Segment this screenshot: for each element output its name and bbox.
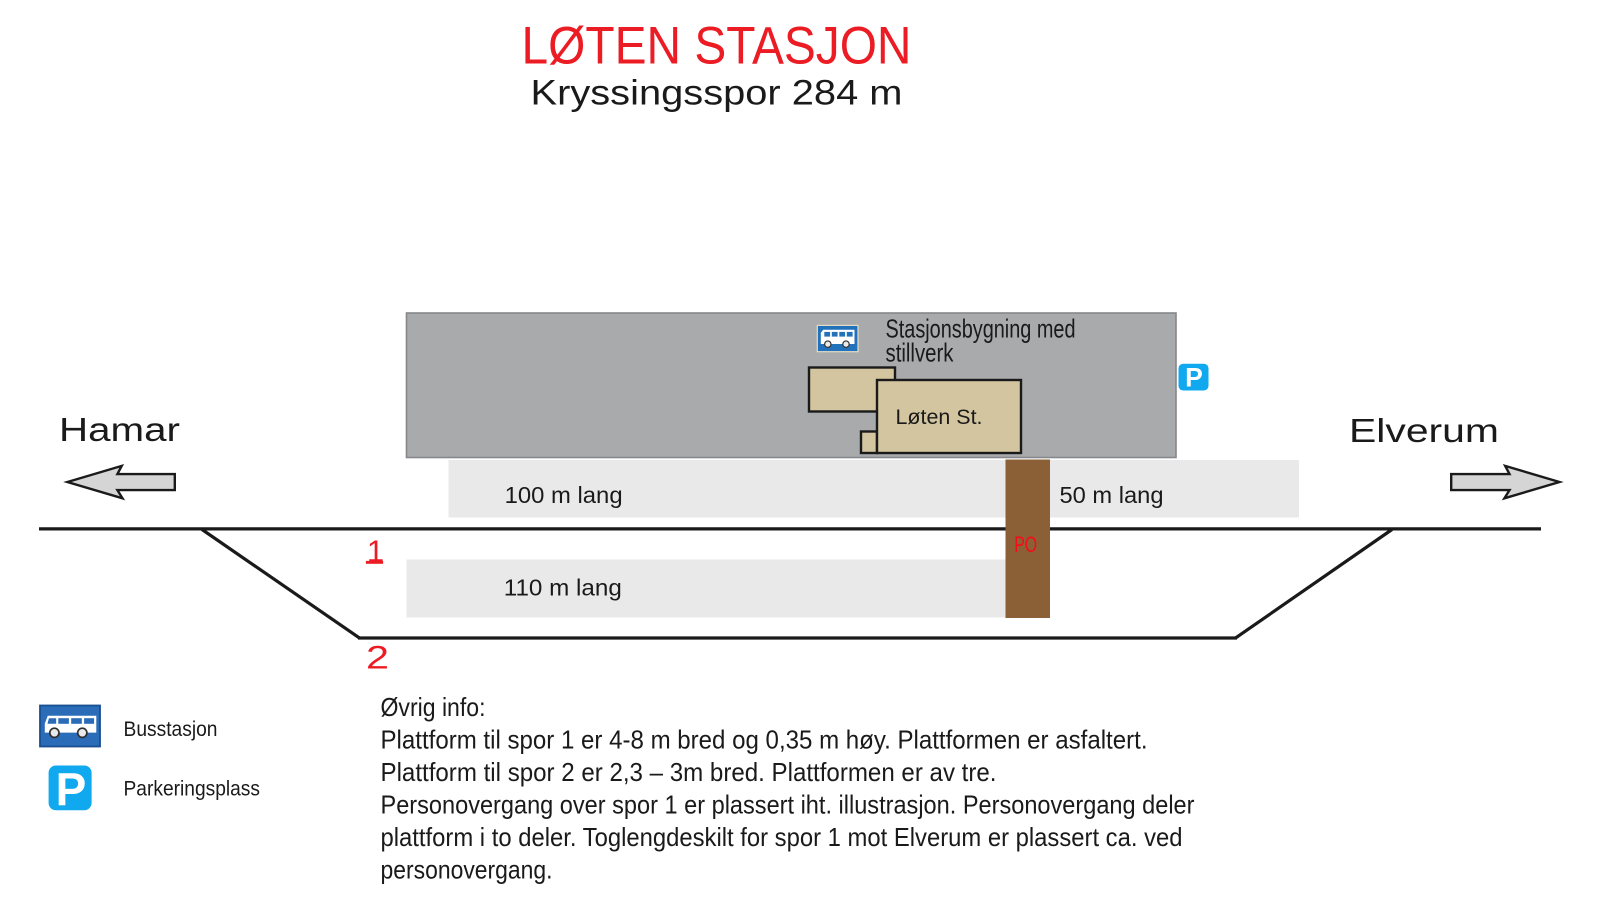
svg-text:2: 2 <box>366 639 389 675</box>
svg-text:P: P <box>56 763 87 815</box>
svg-text:100 m lang: 100 m lang <box>505 482 623 508</box>
svg-text:Personovergang over spor 1 er: Personovergang over spor 1 er plassert i… <box>381 790 1195 820</box>
svg-text:stillverk: stillverk <box>886 338 955 368</box>
svg-text:50 m lang: 50 m lang <box>1060 482 1164 508</box>
svg-text:plattform i to deler. Toglengd: plattform i to deler. Toglengdeskilt for… <box>381 822 1183 852</box>
svg-text:Kryssingsspor 284 m: Kryssingsspor 284 m <box>531 74 903 113</box>
svg-text:LØTEN STASJON: LØTEN STASJON <box>522 17 912 76</box>
svg-text:P: P <box>1185 363 1203 393</box>
svg-text:Elverum: Elverum <box>1349 412 1499 449</box>
svg-text:Parkeringsplass: Parkeringsplass <box>124 778 261 801</box>
svg-text:personovergang.: personovergang. <box>381 855 553 885</box>
svg-text:PO: PO <box>1014 532 1037 557</box>
svg-text:Løten St.: Løten St. <box>896 406 983 429</box>
svg-text:Plattform til spor 2 er 2,3 –: Plattform til spor 2 er 2,3 – 3m bred. P… <box>381 757 997 787</box>
svg-text:Øvrig info:: Øvrig info: <box>381 692 486 722</box>
svg-text:110 m lang: 110 m lang <box>504 575 622 601</box>
svg-text:Hamar: Hamar <box>59 411 180 448</box>
svg-text:Plattform til spor 1 er 4-8 m: Plattform til spor 1 er 4-8 m bred og 0,… <box>381 725 1148 755</box>
svg-text:Busstasjon: Busstasjon <box>124 718 218 741</box>
